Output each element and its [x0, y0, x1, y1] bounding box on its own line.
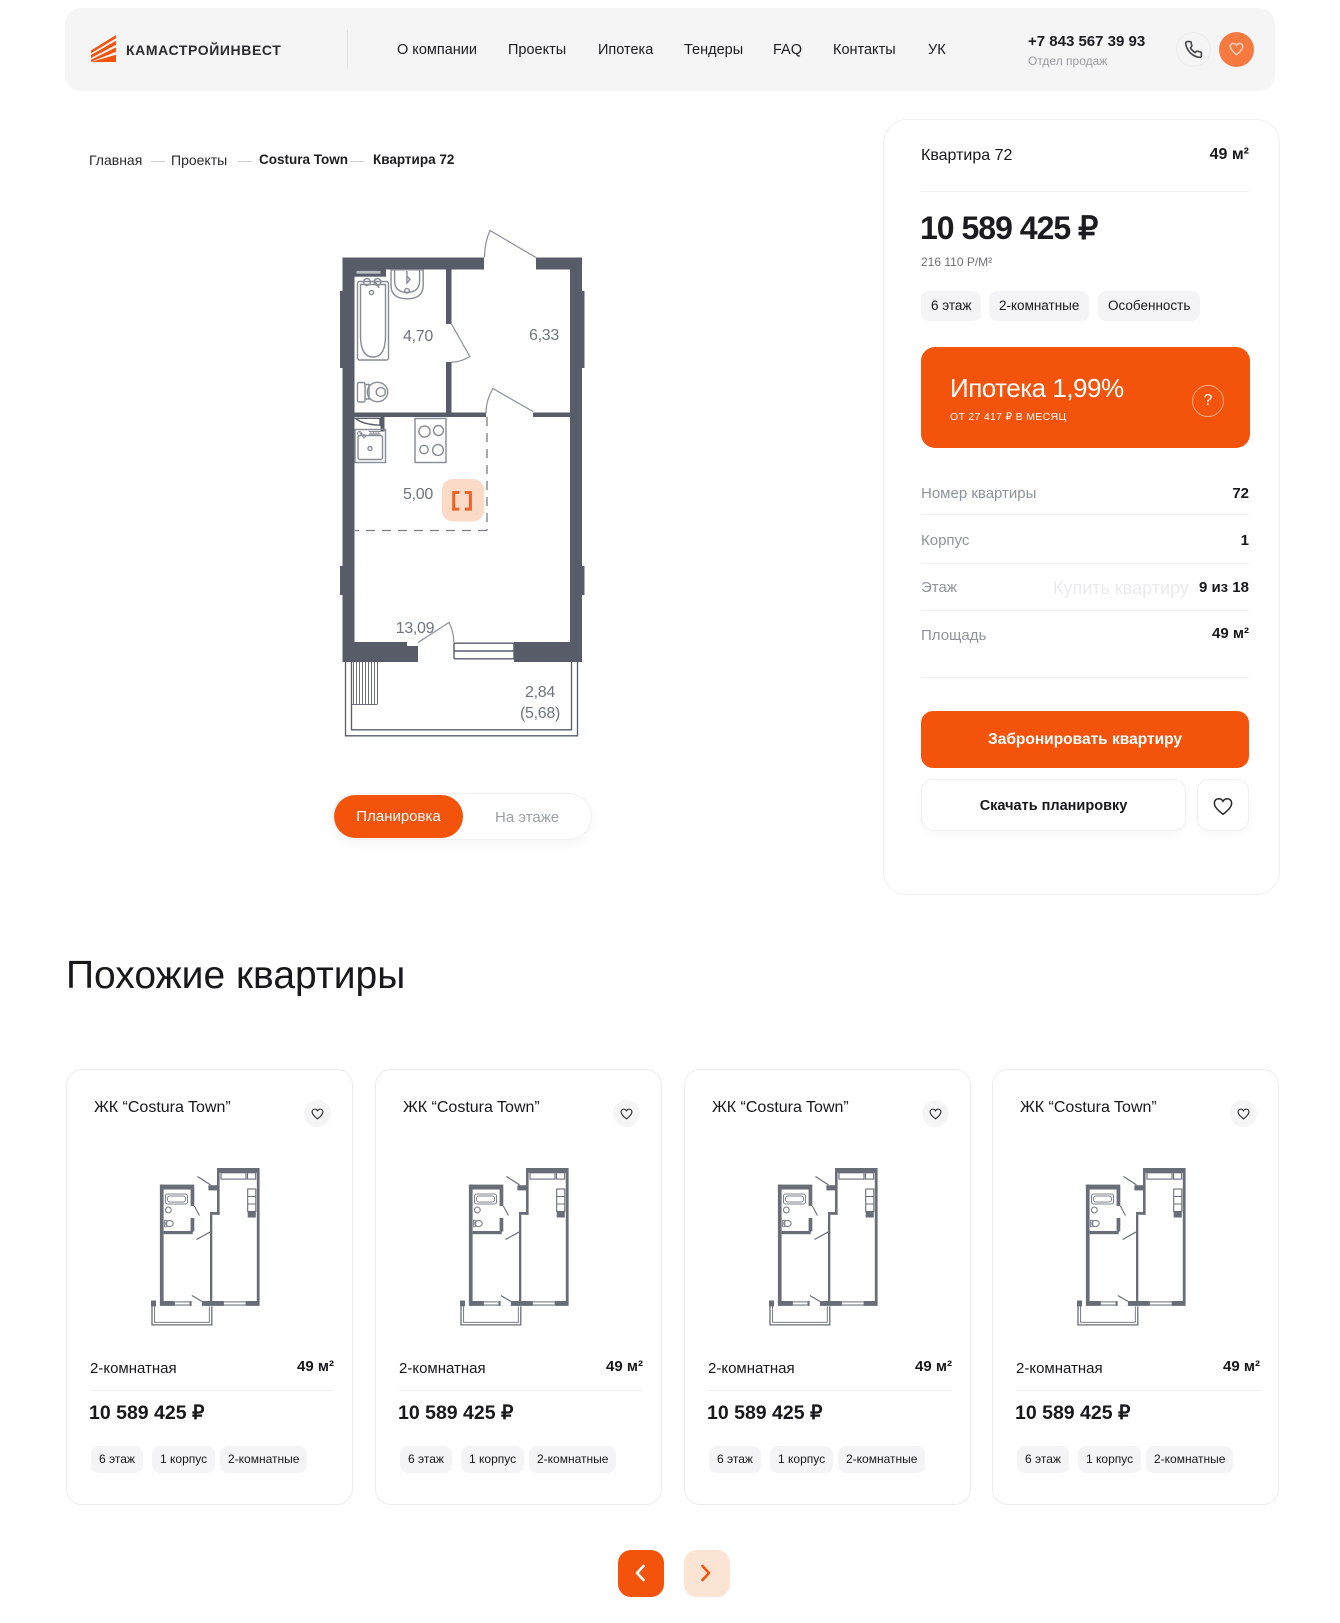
svg-text:5,00: 5,00	[403, 486, 433, 503]
svg-text:6,33: 6,33	[529, 327, 559, 344]
svg-text:4,70: 4,70	[403, 328, 433, 345]
svg-text:(5,68): (5,68)	[520, 705, 560, 722]
svg-text:13,09: 13,09	[396, 620, 435, 637]
svg-text:2,84: 2,84	[525, 684, 555, 701]
